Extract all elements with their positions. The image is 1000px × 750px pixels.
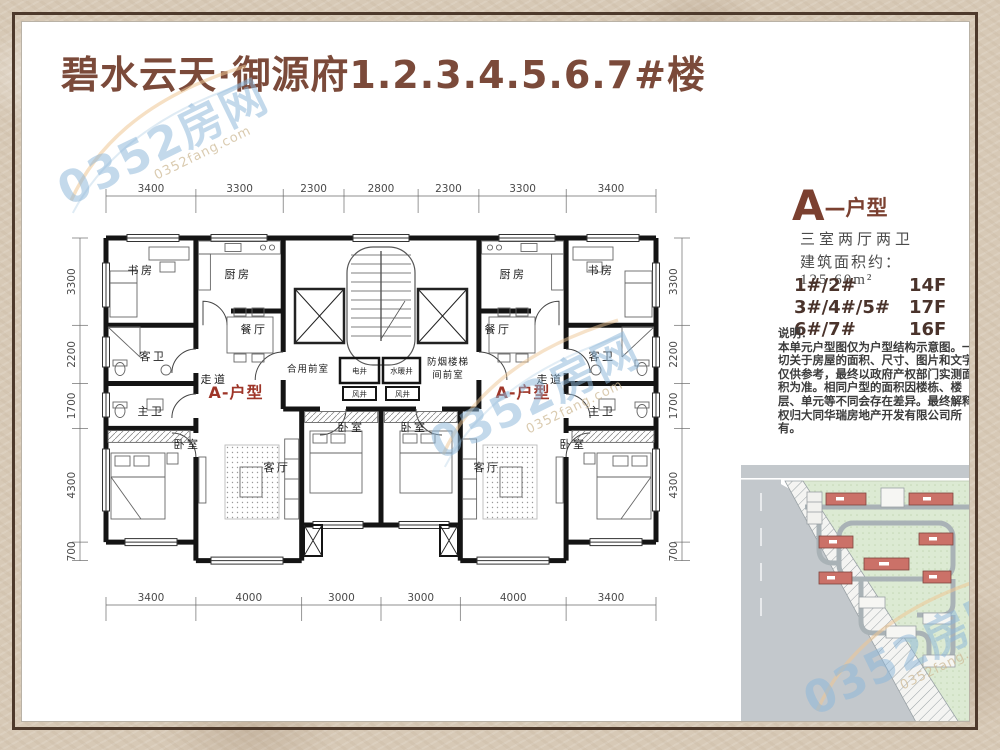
unit-type-letter: A <box>792 185 825 227</box>
room-label-bedroom-right: 卧室 <box>560 437 587 451</box>
room-label-smoke-stair-2: 间前室 <box>432 369 464 381</box>
dim-right-1: 3300 <box>668 268 680 295</box>
dim-top-5: 2300 <box>435 183 462 195</box>
room-label-living-right: 客厅 <box>474 460 501 474</box>
dim-left-4: 4300 <box>66 472 78 499</box>
dim-bottom-6: 3400 <box>598 592 625 604</box>
dim-top-2: 3300 <box>226 183 253 195</box>
unit-type-label-left: A-户型 <box>208 383 263 402</box>
dim-right-5: 700 <box>668 541 680 561</box>
room-label-guest-bath-right: 客卫 <box>589 349 616 363</box>
dim-top-7: 3400 <box>598 183 625 195</box>
dim-left-3: 1700 <box>66 393 78 420</box>
dim-bottom-2: 4000 <box>235 592 262 604</box>
floor-buildings: 3#/4#/5# <box>794 297 909 318</box>
room-label-electrical-shaft: 电井 <box>352 366 367 376</box>
dim-top-6: 3300 <box>509 183 536 195</box>
room-labels: 书房 厨房 餐厅 客卫 走道 主卫 卧室 客厅 A-户型 合用前室 防烟楼梯 间… <box>128 264 616 474</box>
room-label-bedroom-center-left: 卧室 <box>338 420 365 434</box>
dim-bottom-3: 3000 <box>328 592 355 604</box>
floor-row: 1#/2# 14F <box>794 274 970 296</box>
floorplan-page: 碧水云天·御源府1.2.3.4.5.6.7#楼 0352房网 0352fang.… <box>0 0 1000 750</box>
room-label-smoke-stair-1: 防烟楼梯 <box>427 356 469 368</box>
room-label-kitchen-left: 厨房 <box>225 268 252 281</box>
floor-row: 3#/4#/5# 17F <box>794 296 970 318</box>
disclaimer-note: 说明： 本单元户型图仅为户型结构示意图。一切关于房屋的面积、尺寸、图片和文字仅供… <box>778 327 970 436</box>
disclaimer-title: 说明： <box>778 327 970 341</box>
floor-plan-drawing: 3400 3300 2300 2800 2300 3300 3400 3400 … <box>56 161 746 651</box>
floor-height: 17F <box>909 297 946 318</box>
room-label-study-right: 书房 <box>588 264 615 277</box>
dim-right-3: 1700 <box>668 393 680 420</box>
dim-bottom-4: 3000 <box>407 592 434 604</box>
site-plan-map <box>741 453 970 722</box>
unit-layout-spec: 三室两厅两卫 <box>800 228 914 249</box>
room-label-master-bath-left: 主卫 <box>138 405 165 418</box>
room-label-air-shaft-left: 风井 <box>352 389 367 399</box>
room-label-dining-left: 餐厅 <box>241 322 268 336</box>
room-label-study-left: 书房 <box>128 264 155 277</box>
dim-bottom-5: 4000 <box>500 592 527 604</box>
unit-type-title: A —户型 <box>792 185 888 227</box>
room-label-shared-front: 合用前室 <box>287 363 329 375</box>
content-area: 碧水云天·御源府1.2.3.4.5.6.7#楼 0352房网 0352fang.… <box>21 21 970 722</box>
floor-height: 14F <box>909 275 946 296</box>
unit-type-label-right: A-户型 <box>495 383 550 402</box>
page-title: 碧水云天·御源府1.2.3.4.5.6.7#楼 <box>61 44 706 99</box>
dim-right-2: 2200 <box>668 341 680 368</box>
dim-top-3: 2300 <box>300 183 327 195</box>
dim-left-5: 700 <box>66 541 78 561</box>
floor-buildings: 1#/2# <box>794 275 909 296</box>
room-label-bedroom-left: 卧室 <box>174 437 201 451</box>
dim-top-1: 3400 <box>138 183 165 195</box>
room-label-kitchen-right: 厨房 <box>500 268 527 281</box>
room-label-master-bath-right: 主卫 <box>589 405 616 418</box>
room-label-bedroom-center-right: 卧室 <box>401 420 428 434</box>
room-label-dining-right: 餐厅 <box>485 322 512 336</box>
disclaimer-body: 本单元户型图仅为户型结构示意图。一切关于房屋的面积、尺寸、图片和文字仅供参考，最… <box>778 341 970 436</box>
dim-bottom-1: 3400 <box>138 592 165 604</box>
dim-top-4: 2800 <box>368 183 395 195</box>
dim-left-1: 3300 <box>66 268 78 295</box>
room-label-plumbing-shaft: 水暖井 <box>390 366 413 376</box>
unit-type-suffix: —户型 <box>825 192 888 227</box>
room-label-guest-bath-left: 客卫 <box>140 349 167 363</box>
dim-left-2: 2200 <box>66 341 78 368</box>
room-label-living-left: 客厅 <box>264 460 291 474</box>
room-label-air-shaft-right: 风井 <box>395 389 410 399</box>
dim-right-4: 4300 <box>668 472 680 499</box>
